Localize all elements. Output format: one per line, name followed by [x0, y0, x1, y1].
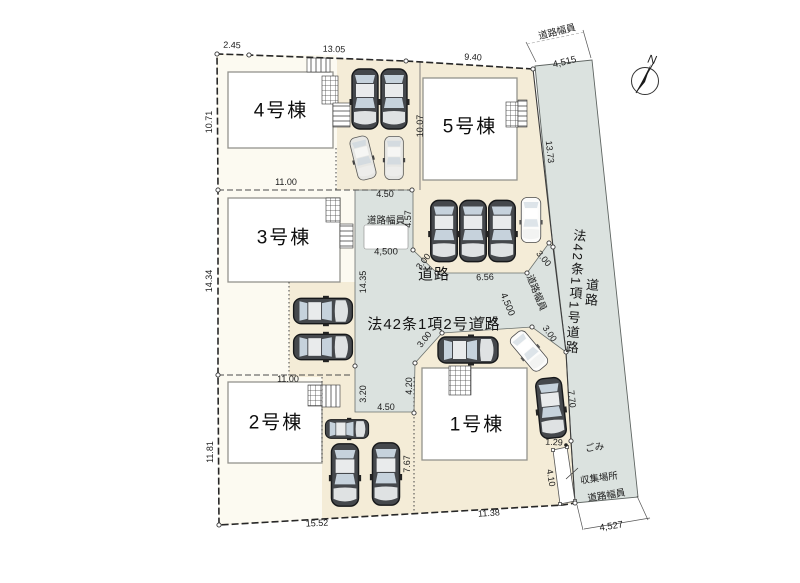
building-2-label: 2号棟	[249, 414, 304, 435]
building-1-label: 1号棟	[450, 416, 505, 437]
road-width-bottom-value: 4,527	[592, 519, 631, 535]
dim-road-a: 13.73	[543, 140, 555, 163]
garbage-line2: 収集場所	[580, 472, 619, 488]
dim-top-b: 13.05	[323, 45, 346, 56]
dim-mid-f: 7.17	[480, 316, 498, 326]
porch-1	[449, 366, 471, 395]
dim-lot1-a: 4.20	[405, 377, 415, 395]
road-right-name: 道路	[583, 278, 598, 309]
building-3-label: 3号棟	[257, 229, 312, 250]
dim-lot4-front: 11.00	[275, 178, 297, 188]
stairs-3	[340, 224, 353, 248]
dim-top-a: 2.45	[223, 41, 241, 51]
dim-left-a: 10.71	[205, 111, 215, 134]
dim-road-c: 1.29	[545, 438, 563, 449]
dim-mid-d: 10.07	[416, 115, 426, 138]
dim-lot1-b: 7.67	[403, 455, 413, 473]
site-plan: 4号棟 5号棟 3号棟 2号棟 1号棟 道路 法42条1項2号道路 道路 法42…	[0, 0, 800, 583]
road-width-caption: 道路幅員	[367, 216, 405, 226]
dim-top-c: 9.40	[464, 53, 482, 64]
building-4-label: 4号棟	[254, 102, 309, 123]
dim-mid-c: 14.35	[359, 271, 369, 294]
dim-mid-a: 4.50	[376, 190, 394, 200]
dim-left-b: 14.34	[205, 270, 215, 293]
dim-lot2-a: 3.20	[359, 385, 369, 403]
dim-mid-b: 4.57	[404, 210, 414, 228]
road-width-center-east-value: 4,500	[495, 285, 519, 324]
stairs-4	[333, 103, 350, 127]
dim-bottom-a: 15.52	[305, 518, 328, 529]
porch-3	[326, 198, 340, 222]
porch-2	[308, 385, 322, 406]
dim-mid-e: 6.56	[476, 273, 494, 283]
road-width-caption: 道路幅員	[524, 274, 548, 313]
garbage-line1: ごみ	[575, 441, 614, 457]
dim-left-c: 11.81	[206, 441, 216, 463]
road-width-top-value: 4,515	[545, 54, 584, 73]
dim-road-d: 4.10	[544, 469, 557, 488]
building-5-label: 5号棟	[443, 118, 498, 139]
stairs-5	[518, 100, 527, 127]
road-width-caption: 道路幅員	[538, 23, 577, 42]
stairs-2	[322, 385, 340, 407]
road-width-center-west-value: 4,500	[367, 247, 405, 257]
approach-4	[307, 58, 330, 72]
road-width-center-west: 道路幅員 4,500	[367, 195, 405, 279]
dim-lot3-front: 11.00	[277, 375, 299, 385]
dim-road-b: 7.70	[565, 390, 577, 408]
porch-4	[322, 76, 338, 104]
dim-bottom-b: 11.38	[478, 508, 500, 519]
porch-5	[506, 102, 518, 127]
dim-lot2-b: 4.50	[377, 403, 395, 413]
